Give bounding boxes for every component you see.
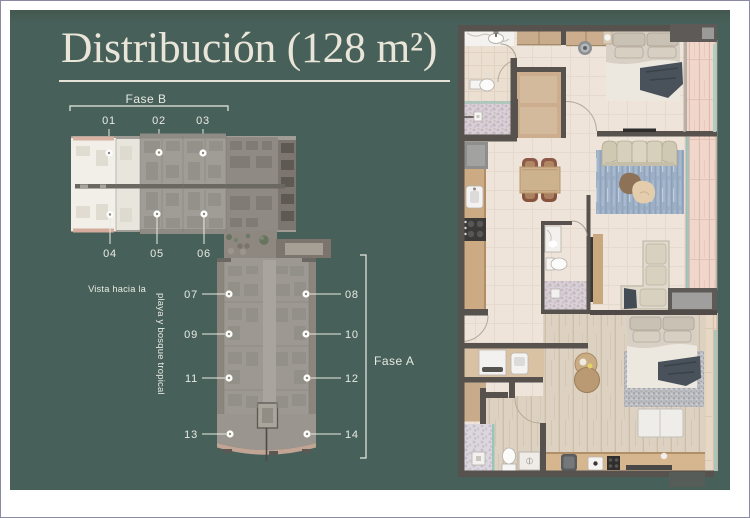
- svg-text:09: 09: [184, 329, 198, 341]
- svg-text:Fase A: Fase A: [374, 354, 414, 368]
- svg-text:05: 05: [150, 248, 164, 260]
- svg-text:04: 04: [103, 248, 117, 260]
- svg-text:01: 01: [102, 115, 116, 127]
- svg-text:12: 12: [345, 373, 359, 385]
- svg-text:Vista hacia la: Vista hacia la: [88, 284, 147, 294]
- svg-text:11: 11: [185, 373, 198, 385]
- svg-text:13: 13: [184, 429, 198, 441]
- svg-text:06: 06: [197, 248, 211, 260]
- svg-text:07: 07: [184, 289, 198, 301]
- svg-text:08: 08: [345, 289, 359, 301]
- svg-text:14: 14: [345, 429, 359, 441]
- svg-text:10: 10: [345, 329, 359, 341]
- svg-text:03: 03: [196, 115, 210, 127]
- svg-text:Fase B: Fase B: [125, 92, 166, 106]
- svg-text:playa y bosque tropical: playa y bosque tropical: [155, 293, 166, 395]
- svg-text:02: 02: [152, 115, 166, 127]
